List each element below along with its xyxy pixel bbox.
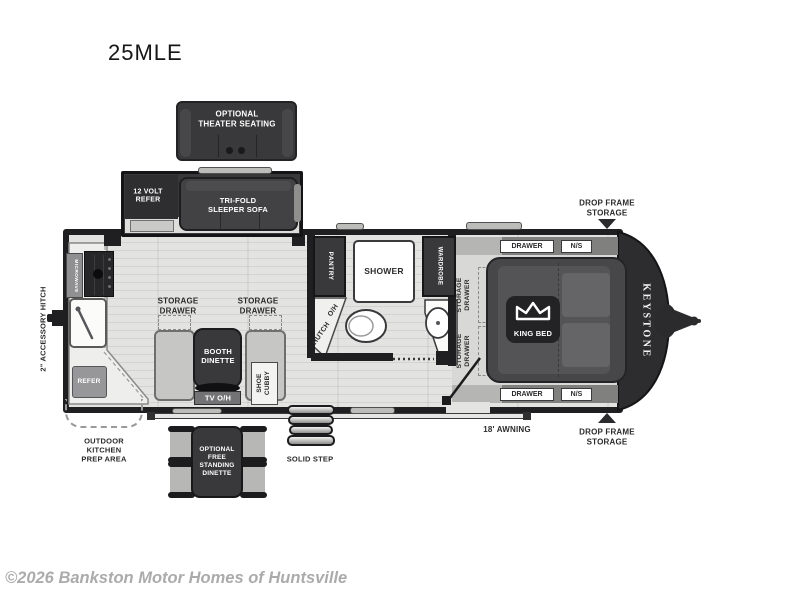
king-bed-label: KING BED (514, 329, 552, 338)
kitchen-refer-label: REFER (77, 378, 100, 386)
booth-dinette-label: BOOTH DINETTE (201, 347, 234, 365)
cupholder-icon (238, 147, 245, 154)
kitchen-sink (70, 299, 106, 347)
wall-jog (104, 229, 121, 246)
drawer-text: DRAWER (511, 243, 542, 250)
microwave-label: MICROWAVE (72, 259, 78, 292)
floorplan-page: 25MLE OPTIONAL THEATER SEATING 12 VOLT R… (0, 0, 800, 600)
wardrobe-label: WARDROBE (435, 247, 442, 286)
entry-step (287, 405, 335, 415)
dinette-chair (242, 463, 265, 496)
drop-frame-storage-rear-label: DROP FRAME STORAGE (579, 427, 635, 446)
accessory-hitch-stub (47, 314, 54, 322)
bench-footprint-dashed (158, 315, 191, 330)
crown-icon (514, 301, 552, 321)
drop-frame-storage-front-label: DROP FRAME STORAGE (579, 198, 635, 217)
solid-step-label: SOLID STEP (287, 455, 334, 464)
awning-end-cap (523, 412, 531, 420)
dinette-chair (242, 428, 265, 461)
free-standing-dinette-label: OPTIONAL FREE STANDING DINETTE (199, 446, 234, 479)
brand-label: KEYSTONE (641, 283, 652, 358)
slide-handle (198, 167, 272, 174)
nightstand-label-bottom: N/S (561, 388, 592, 401)
outdoor-kitchen-label: OUTDOOR KITCHEN PREP AREA (81, 437, 126, 464)
refer-12v-label: 12 VOLT REFER (133, 189, 162, 206)
refer-door (130, 220, 174, 232)
drop-frame-arrow-icon (598, 219, 616, 229)
ns-text: N/S (571, 391, 583, 398)
drawer-label-bottom: DRAWER (500, 388, 554, 401)
entry-step (289, 425, 333, 435)
entry-step (288, 415, 334, 425)
booth-bench-left (154, 330, 195, 401)
theater-armrest-right (282, 109, 293, 157)
drawer-text: DRAWER (511, 391, 542, 398)
sofa-label: TRI-FOLD SLEEPER SOFA (208, 196, 268, 214)
seat-seam (218, 135, 219, 157)
dinette-chair (170, 463, 193, 496)
pantry-label: PANTRY (326, 252, 334, 281)
wall-handle (466, 222, 522, 230)
entry-door-swing (435, 350, 495, 410)
bed-storage-drawer-upper-label: STORAGE DRAWER (456, 278, 472, 313)
accessory-hitch-label: 2" ACCESSORY HITCH (39, 286, 48, 371)
bath-wall (311, 353, 393, 361)
drop-frame-arrow-icon (598, 413, 616, 423)
dinette-chair (170, 428, 193, 461)
storage-drawer-label-left: STORAGE DRAWER (158, 296, 199, 315)
nightstand-label-top: N/S (561, 240, 592, 253)
storage-drawer-label-right: STORAGE DRAWER (238, 296, 279, 315)
king-bed: KING BED (486, 257, 627, 383)
hitch-cone (672, 309, 692, 333)
sofa-back (186, 181, 291, 191)
ns-text: N/S (571, 243, 583, 250)
king-bed-badge: KING BED (506, 296, 560, 343)
shower-label: SHOWER (364, 266, 403, 276)
cupholder-icon (226, 147, 233, 154)
wall-handle (350, 407, 395, 414)
drawer-label-top: DRAWER (500, 240, 554, 253)
theater-seating-label: OPTIONAL THEATER SEATING (198, 109, 275, 128)
outdoor-kitchen-area (65, 399, 143, 428)
entry-step (287, 435, 335, 446)
wall-handle (336, 223, 364, 230)
awning-end-cap (147, 412, 155, 420)
toilet (346, 310, 386, 342)
theater-armrest-left (180, 109, 191, 157)
cooktop (84, 251, 114, 297)
copyright-text: ©2026 Bankston Motor Homes of Huntsville (5, 569, 347, 588)
awning-label: 18' AWNING (483, 425, 531, 435)
tv-overhead-label: TV O/H (205, 394, 231, 403)
shoe-cubby-label: SHOE CUBBY (256, 371, 272, 395)
wall-handle (172, 408, 222, 414)
bench-footprint-dashed (249, 315, 282, 330)
seat-seam (256, 135, 257, 157)
burner-icon (93, 269, 103, 279)
slide-side-pillow (294, 184, 301, 222)
